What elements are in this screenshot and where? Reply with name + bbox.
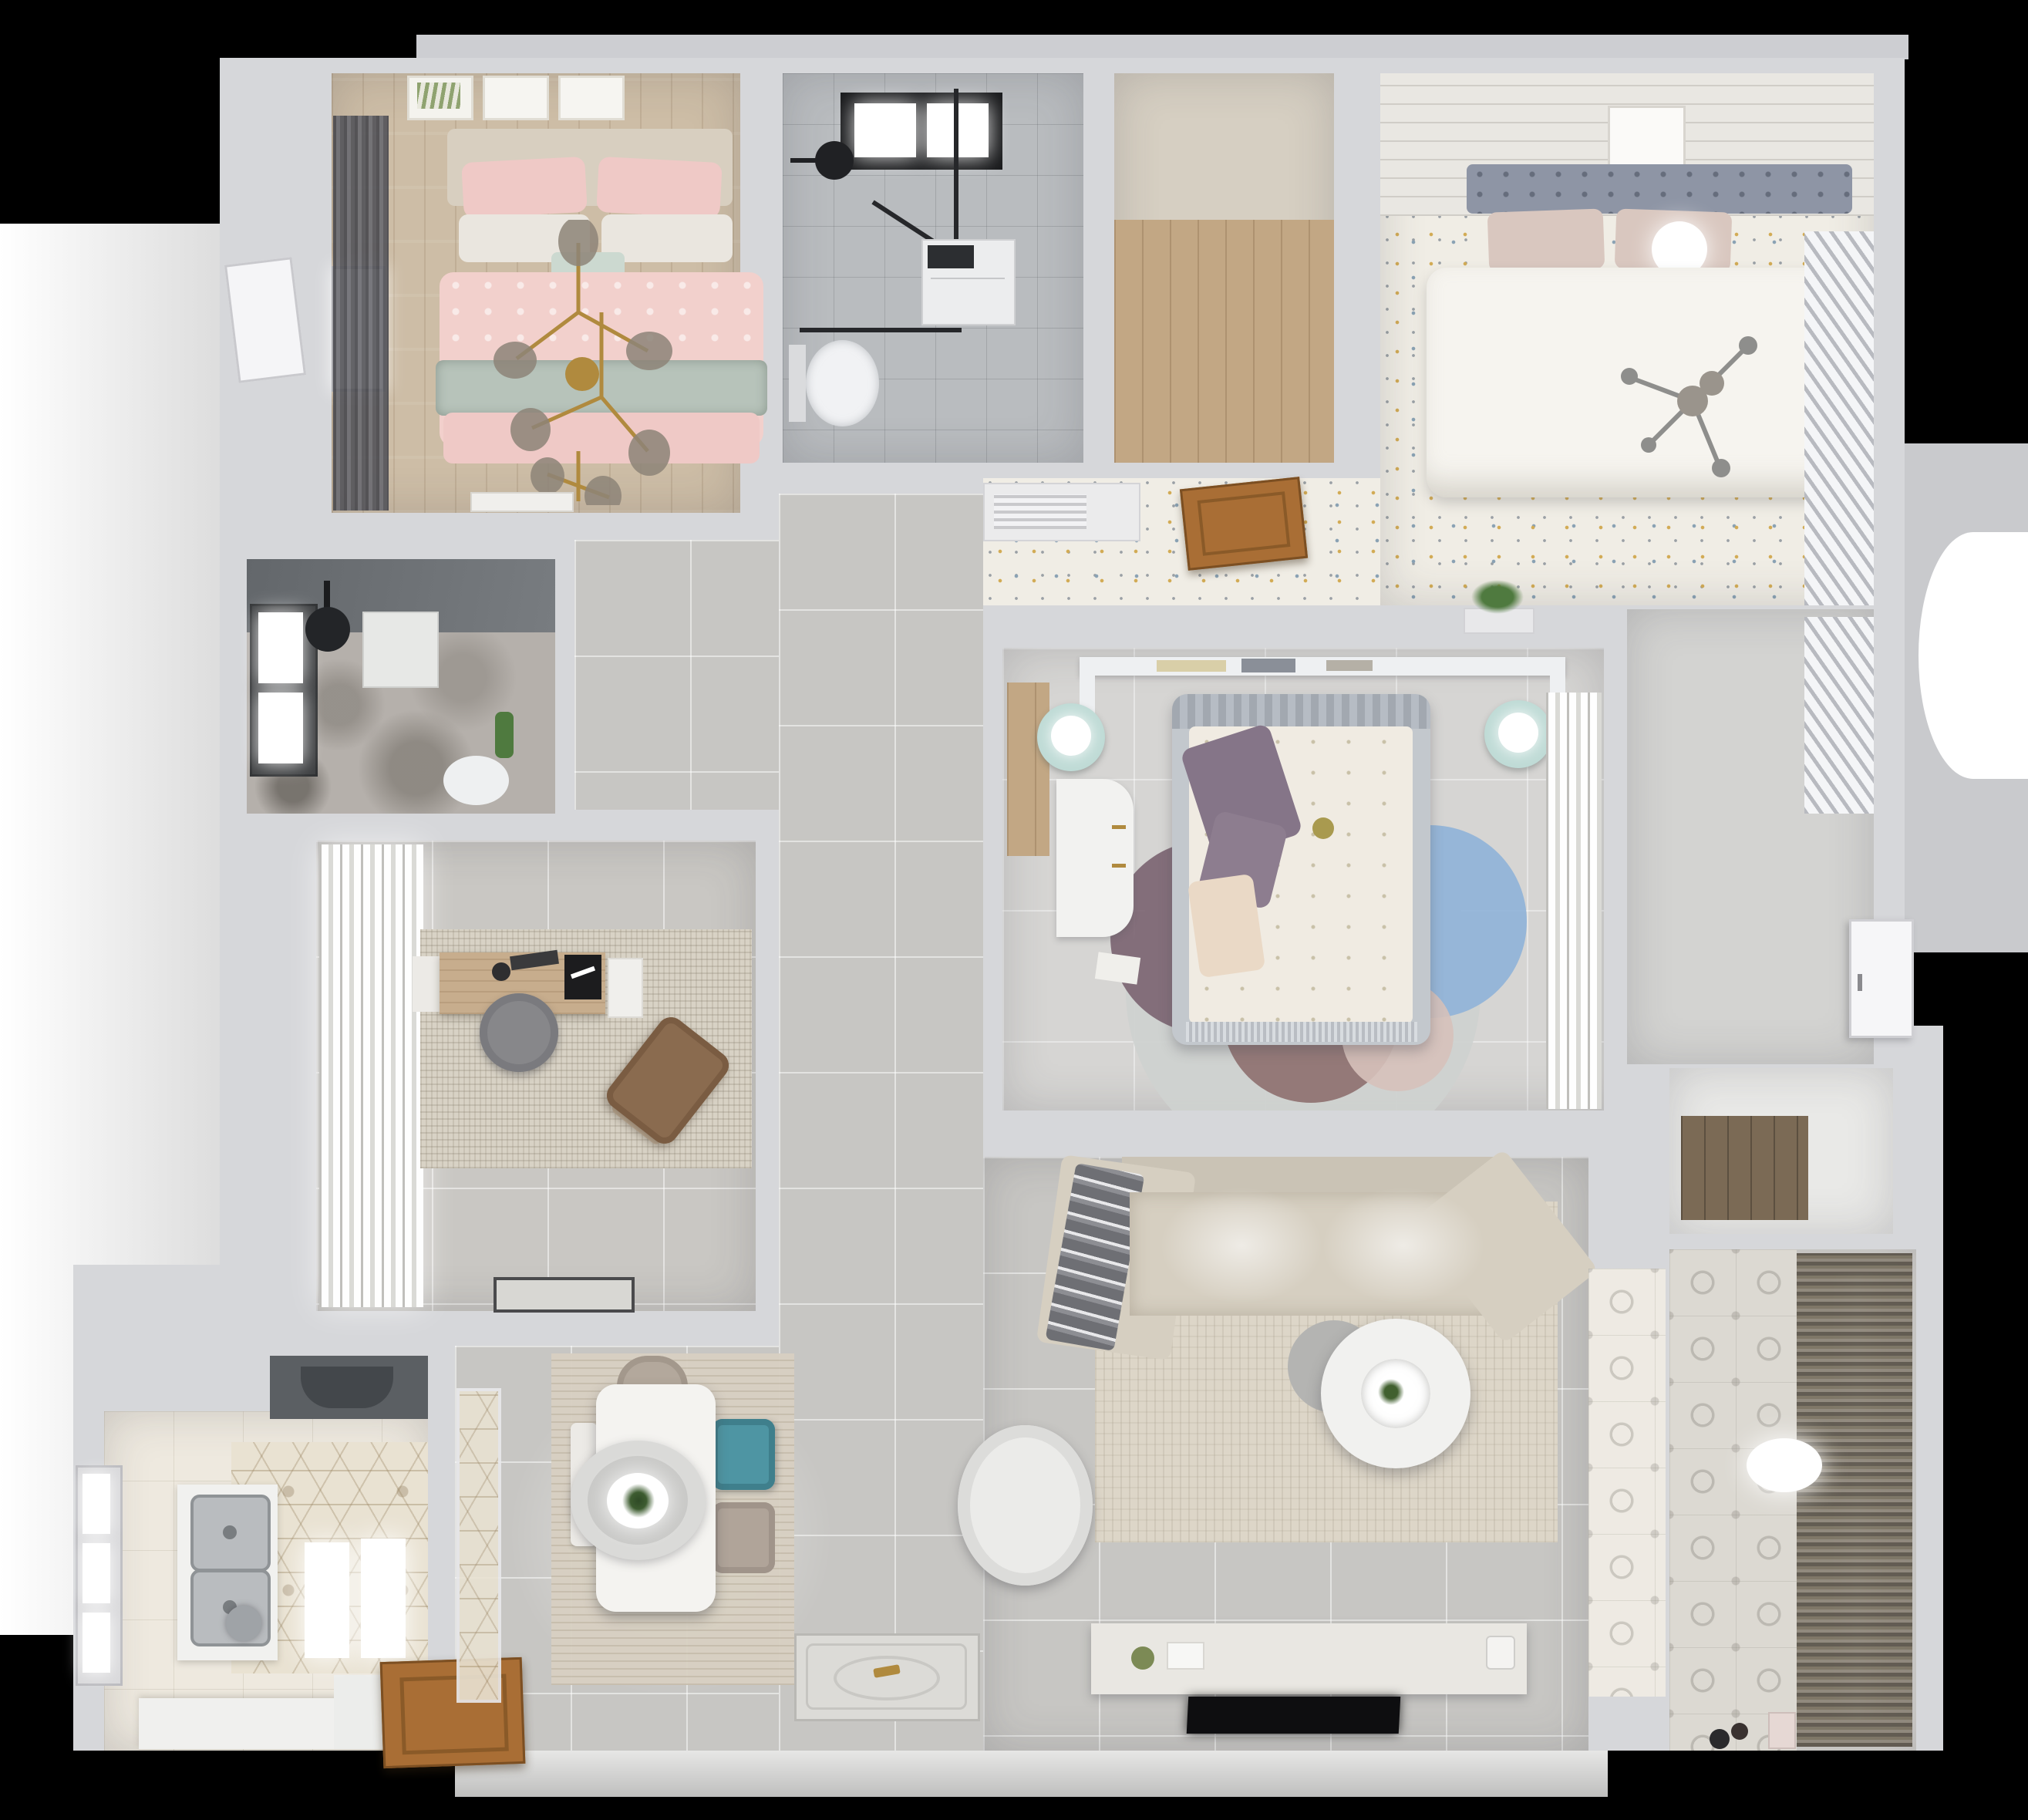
nook-wood-shelf <box>1681 1116 1808 1220</box>
tv-console <box>1091 1623 1527 1694</box>
study-swivel-chair <box>480 993 558 1072</box>
living-armchair <box>958 1425 1093 1586</box>
room-balcony <box>1669 1249 1916 1751</box>
flat-tv <box>1187 1697 1401 1734</box>
kitchen-window-pane-2 <box>83 1543 110 1603</box>
kitchen-light-panel-2 <box>361 1539 406 1658</box>
master-wardrobe-sheers <box>1546 693 1602 1109</box>
toilet-tank <box>789 345 806 422</box>
desk-mug <box>492 962 510 981</box>
study-doormat <box>494 1277 635 1313</box>
shelf-book-2 <box>1241 659 1295 672</box>
console-green-disc <box>1131 1646 1154 1670</box>
room-right-hall <box>1627 609 1874 1064</box>
shower2-window-pane-bottom <box>258 693 303 763</box>
pillow-cream <box>1187 874 1266 979</box>
bed-fringe <box>1186 1022 1417 1042</box>
bedroom2-open-door <box>1180 477 1308 571</box>
shelf-book-1 <box>1157 660 1226 672</box>
louvered-cabinet <box>983 483 1140 541</box>
art-frame-botanical-2 <box>483 76 549 120</box>
study-side-unit <box>608 958 643 1018</box>
floorplan-render <box>0 0 2028 1820</box>
exterior-door-top-left <box>224 257 306 383</box>
headboard-shelf-top <box>1080 657 1565 676</box>
door-handle <box>1858 974 1862 991</box>
master-desk <box>1056 779 1134 937</box>
right-hall-shutters <box>1804 617 1874 814</box>
washer-door-line <box>931 278 1005 279</box>
shelf-book-3 <box>1326 660 1373 671</box>
hallway-landing <box>574 540 779 810</box>
kitchen-window <box>76 1465 123 1686</box>
dining-chair-beige <box>712 1502 775 1573</box>
bedroom2-entry-strip <box>983 478 1380 605</box>
doormat-scroll-motif <box>834 1656 940 1700</box>
closet-wood-floor <box>1114 220 1334 463</box>
coffee-table-plant <box>1378 1379 1404 1405</box>
desk-gold-handle-2 <box>1112 864 1126 868</box>
room-master-bedroom <box>1002 648 1604 1111</box>
shower2-window-pane-top <box>258 612 303 683</box>
balcony-cylinders <box>1768 1712 1796 1749</box>
divider-plant <box>1471 580 1524 614</box>
pendant-plant-centerpiece <box>622 1484 655 1518</box>
study-black-screen <box>564 955 601 999</box>
bed1-pillow-pink-left <box>461 157 588 218</box>
dining-chair-teal <box>712 1419 775 1490</box>
console-white-box <box>1167 1642 1204 1670</box>
master-bed-frame <box>1172 694 1430 1045</box>
kitchen-window-pane-1 <box>83 1474 110 1534</box>
skylight-frame <box>841 93 1002 170</box>
room-bathroom-shower <box>783 73 1083 463</box>
duvet-gold-sprig <box>1312 817 1334 839</box>
art-frame-botanical-1 <box>407 76 473 120</box>
master-headboard-band <box>1172 694 1430 729</box>
shower2-tray <box>362 612 439 688</box>
bath3-tile-strip <box>1588 1269 1666 1697</box>
room-study <box>316 841 756 1311</box>
shower2-toilet <box>443 756 509 805</box>
room-bedroom-pink <box>332 73 740 513</box>
room-shower-dark <box>247 559 555 814</box>
desk-gold-handle-1 <box>1112 825 1126 829</box>
bed2-headboard <box>1467 164 1852 214</box>
art-frame-botanical-3 <box>558 76 625 120</box>
shower2-head-black <box>305 607 350 652</box>
balcony-toy-dark-1 <box>1710 1729 1730 1749</box>
balcony-motif-wall <box>1669 1249 1797 1751</box>
hood-inner <box>301 1367 393 1408</box>
console-right-items <box>1486 1636 1515 1670</box>
bedroom2-art-frame <box>1608 106 1686 167</box>
range-hood <box>270 1356 428 1419</box>
cabinet-louver-grille <box>994 494 1086 529</box>
outer-bottom-band <box>455 1749 1608 1797</box>
room-storage-nook <box>1669 1068 1893 1234</box>
kitchen-sink-top <box>190 1495 271 1572</box>
washer-control-panel <box>928 245 974 268</box>
skylight-pane-left <box>854 103 916 157</box>
bedroom2-shutter-wardrobe <box>1804 231 1874 605</box>
balcony-ceiling-lamp <box>1747 1438 1822 1492</box>
shower-glass-bottom <box>800 328 962 332</box>
balcony-slatted-blinds <box>1797 1253 1912 1747</box>
entry-doormat-ornate <box>794 1633 980 1721</box>
toilet-bowl <box>806 340 879 426</box>
bed2-pillow-left <box>1487 208 1605 272</box>
outer-right-blob <box>1919 532 2028 779</box>
balcony-toy-dark-2 <box>1731 1723 1748 1740</box>
kitchen-window-pane-3 <box>83 1613 110 1673</box>
nightstand-left-lamp <box>1051 716 1091 756</box>
screen-sketch <box>571 966 595 979</box>
bed1-pillow-pink-right <box>596 157 723 218</box>
kitchen-faucet <box>226 1606 261 1641</box>
bed1-bench <box>470 492 574 512</box>
right-hall-door <box>1849 919 1914 1038</box>
kitchen-light-panel-1 <box>305 1542 349 1658</box>
master-wood-nook <box>1007 682 1049 856</box>
hallway-vertical <box>779 494 983 1751</box>
room-bedroom-white <box>1380 73 1874 605</box>
kitchen-open-door <box>380 1657 526 1768</box>
master-desk-pad <box>1095 952 1140 984</box>
frame-print-green <box>417 83 460 109</box>
shower2-plant <box>495 712 514 758</box>
kitchen-passthrough-panel <box>456 1388 501 1703</box>
gold-branch-chandelier <box>455 220 709 505</box>
sink-drain-1 <box>223 1525 237 1539</box>
door-panel-inset <box>1198 491 1291 556</box>
bedroom1-curtains <box>333 116 389 511</box>
washing-machine <box>921 239 1016 325</box>
shower-head-black <box>815 141 854 180</box>
outer-top-band <box>416 35 1908 59</box>
study-curtains <box>319 844 423 1307</box>
bed2-gray-chandelier <box>1604 320 1781 482</box>
nightstand-right-lamp <box>1498 713 1538 753</box>
room-walkin-closet <box>1114 73 1334 463</box>
